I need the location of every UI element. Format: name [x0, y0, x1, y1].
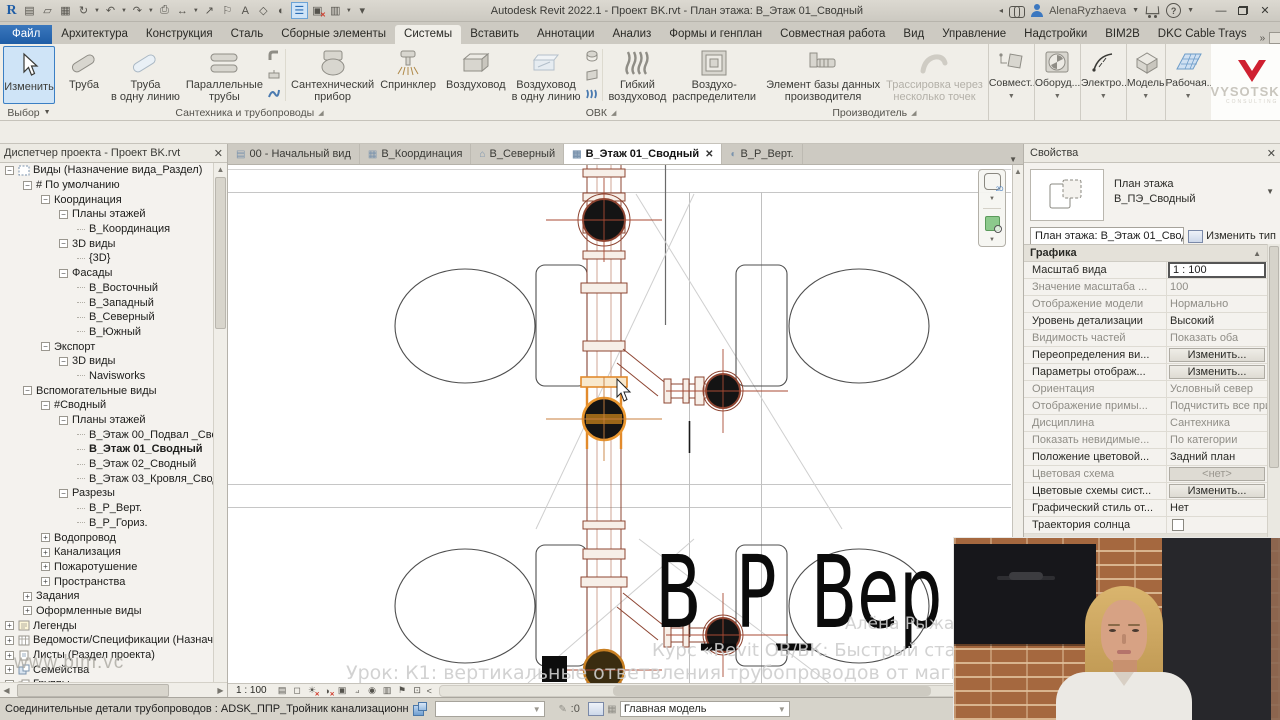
property-label: Дисциплина [1024, 415, 1167, 431]
property-label: Ориентация [1024, 381, 1167, 397]
vysotskiy-brand: VYSOTSKIY [1211, 84, 1280, 99]
sun-path-icon[interactable]: ☀✕ [306, 685, 319, 697]
vysotskiy-sub: CONSULTING [1226, 99, 1278, 105]
tree-item-Navisworks[interactable]: Navisworks [0, 369, 213, 384]
project-browser-close-icon[interactable]: ✕ [214, 147, 223, 160]
property-row-Уровень детализации: Уровень детализацииВысокий [1024, 313, 1267, 330]
presenter-face [1101, 600, 1147, 664]
tree-item-В_Этаж 01_Сводный[interactable]: В_Этаж 01_Сводный [0, 442, 213, 457]
workset-dropdown[interactable]: Главная модель ▼ [620, 701, 790, 717]
store-cart-icon[interactable] [1145, 5, 1160, 17]
Рабочая...-caret-icon[interactable]: ▼ [1185, 89, 1192, 103]
button-Элемент базы данных производителя[interactable]: Элемент базы данныхпроизводителя [763, 45, 883, 105]
property-button[interactable]: Изменить... [1169, 365, 1265, 379]
minimize-button[interactable]: — [1210, 2, 1232, 20]
collaborate-icon [997, 47, 1025, 77]
plan-view-icon: ▦ [572, 149, 581, 160]
type-selector-caret-icon[interactable]: ▼ [1266, 187, 1274, 196]
tab-Надстройки[interactable]: Надстройки [1015, 25, 1096, 44]
Модель-caret-icon[interactable]: ▼ [1142, 89, 1149, 103]
collapse-icon[interactable]: − [59, 239, 68, 248]
tab-Формы и генплан[interactable]: Формы и генплан [660, 25, 771, 44]
type-category: План этажа [1114, 177, 1195, 192]
view-tab-В_Координация[interactable]: ▦В_Координация [360, 144, 472, 164]
tree-item-3D виды[interactable]: −3D виды [0, 354, 213, 369]
tree-item-Оформленные виды[interactable]: +Оформленные виды [0, 604, 213, 619]
property-row-Ориентация: ОриентацияУсловный север [1024, 381, 1267, 398]
tab-Сталь[interactable]: Сталь [222, 25, 273, 44]
collapse-icon[interactable]: − [5, 166, 14, 175]
expand-icon[interactable]: + [23, 606, 32, 615]
property-value[interactable]: Показать оба [1167, 330, 1267, 346]
property-label: Траектория солнца [1024, 517, 1167, 533]
elevation-view-icon: ⌂ [479, 149, 485, 160]
tv-screen [954, 544, 1096, 644]
collapse-icon[interactable]: − [59, 210, 68, 219]
type-preview: План этажа В_ПЭ_Сводный ▼ [1024, 163, 1280, 225]
open-file-icon[interactable]: ▱ [39, 2, 56, 19]
ribbon-tab-extras: »▼ [1260, 32, 1280, 44]
bim-vc-watermark: www.bim.vc [14, 652, 124, 674]
tab-Анализ[interactable]: Анализ [603, 25, 660, 44]
property-value[interactable]: Сантехника [1167, 415, 1267, 431]
property-value[interactable]: Нет [1167, 500, 1267, 516]
property-row-Цветовая схема: Цветовая схема<нет> [1024, 466, 1267, 483]
tree-item-Легенды[interactable]: +Легенды [0, 618, 213, 633]
multipoint-routing-icon [917, 47, 951, 79]
button-Сантехнический прибор[interactable]: Сантехническийприбор [288, 45, 377, 105]
plumbing-fixture-icon [318, 47, 348, 79]
button-Параллельные трубы[interactable]: Параллельныетрубы [183, 45, 266, 105]
reveal-hidden-icon[interactable]: ◉ [366, 685, 379, 697]
signed-in-user[interactable]: AlenaRyzhaeva [1049, 5, 1126, 17]
project-browser-vscrollbar[interactable]: ▲ [213, 163, 227, 682]
help-menu-caret-icon[interactable]: ▼ [1187, 7, 1194, 14]
property-button[interactable]: Изменить... [1169, 484, 1265, 498]
view-control-bar: 1 : 100 ▤◻☀✕◑✕▣⟓◉▥⚑⊡ < [228, 683, 1023, 697]
pipe-icon [69, 47, 99, 79]
type-preview-image [1030, 169, 1104, 221]
equipment-icon [1043, 47, 1071, 77]
print-icon[interactable]: ⎙ [156, 2, 173, 19]
property-label: Цветовая схема [1024, 466, 1167, 482]
zoom-caret-icon[interactable]: ▼ [989, 237, 995, 243]
revit-window: R▤▱▦↻▼↶▼↷▼⎙↔▼↗⚐A◇◐☰▣✕▥▼▾ Autodesk Revit … [0, 0, 1280, 720]
project-browser-hscrollbar[interactable]: ◀▶ [0, 682, 227, 697]
tree-item-Ведомости/Спецификации (Назначен[interactable]: +Ведомости/Спецификации (Назначен [0, 633, 213, 648]
temporary-hide-icon[interactable]: ▥ [381, 685, 394, 697]
section-icon[interactable]: ◐ [273, 2, 290, 19]
collapse-viewbar-icon[interactable]: < [427, 686, 432, 696]
tree-item-Вспомогательные виды[interactable]: −Вспомогательные виды [0, 383, 213, 398]
collapse-icon[interactable]: − [59, 416, 68, 425]
tree-item-В_Этаж 02_Сводный[interactable]: В_Этаж 02_Сводный [0, 457, 213, 472]
button-Воздухо- распределители[interactable]: Воздухо-распределители [669, 45, 759, 105]
tree-item-#Сводный[interactable]: −#Сводный [0, 398, 213, 413]
property-row-Отображение примы...: Отображение примы...Подчистить все прим.… [1024, 398, 1267, 415]
expand-icon[interactable]: + [41, 577, 50, 586]
ribbon-state-icon[interactable] [1269, 32, 1280, 44]
property-label: Показать невидимые... [1024, 432, 1167, 448]
ribbon-tab-bar: ФайлАрхитектураКонструкцияСтальСборные э… [0, 22, 1280, 44]
property-checkbox[interactable] [1172, 519, 1184, 531]
property-value[interactable]: По категории [1167, 432, 1267, 448]
user-interface-icon[interactable]: ☰ [291, 2, 308, 19]
expand-icon[interactable]: + [5, 651, 14, 660]
tree-item-Фасады[interactable]: −Фасады [0, 266, 213, 281]
mini-panel-Рабочая...[interactable]: Рабочая...▼ [1165, 44, 1211, 120]
property-row-Масштаб вида: Масштаб вида1 : 100 [1024, 262, 1267, 279]
tree-item-В_Этаж 03_Кровля_Сводны[interactable]: В_Этаж 03_Кровля_Сводны [0, 471, 213, 486]
collapse-icon[interactable]: − [41, 195, 50, 204]
tree-item-{3D}[interactable]: {3D} [0, 251, 213, 266]
type-selector-value: План этажа: В_Этаж 01_Сводный [1035, 230, 1184, 242]
tab-Системы[interactable]: Системы [395, 25, 461, 44]
property-row-Переопределения ви...: Переопределения ви...Изменить... [1024, 347, 1267, 364]
webcam-video [953, 537, 1280, 720]
watermark-lesson: Урок: К1: вертикальные ответвления трубо… [346, 662, 1033, 684]
expand-icon[interactable]: + [5, 636, 14, 645]
user-icon [1031, 4, 1043, 17]
tree-item-В_Северный[interactable]: В_Северный [0, 310, 213, 325]
collapse-icon[interactable]: − [41, 342, 50, 351]
edit-type-label: Изменить тип [1206, 230, 1276, 242]
tab-Конструкция[interactable]: Конструкция [137, 25, 222, 44]
tree-item-В_Восточный[interactable]: В_Восточный [0, 281, 213, 296]
tab-Сборные элементы[interactable]: Сборные элементы [272, 25, 395, 44]
wheel-caret-icon[interactable]: ▼ [989, 196, 995, 202]
expand-icon[interactable]: + [23, 592, 32, 601]
property-row-Графический стиль от...: Графический стиль от...Нет [1024, 500, 1267, 517]
tree-item-В_Западный[interactable]: В_Западный [0, 295, 213, 310]
property-group-Графика[interactable]: Графика▲ [1024, 245, 1267, 262]
user-menu-caret-icon[interactable]: ▼ [1132, 7, 1139, 14]
view-tab-В_Р_Верт.[interactable]: ◐В_Р_Верт. [722, 144, 802, 164]
property-label: Отображение модели [1024, 296, 1167, 312]
panel-ОВК: ВоздуховодВоздуховодв одну линиюГибкийво… [441, 44, 761, 120]
collapse-icon[interactable]: − [59, 489, 68, 498]
visual-style-icon[interactable]: ◻ [291, 685, 304, 697]
project-browser-tree: −Виды (Назначение вида_Раздел)−# По умол… [0, 163, 213, 682]
property-row-Отображение модели: Отображение моделиНормально [1024, 296, 1267, 313]
expand-icon[interactable]: + [41, 562, 50, 571]
air-terminal-icon [699, 47, 729, 79]
close-hidden-windows-icon[interactable]: ▣✕ [309, 2, 326, 19]
tab-Управление[interactable]: Управление [933, 25, 1015, 44]
tab-Вставить[interactable]: Вставить [461, 25, 528, 44]
window-title: Autodesk Revit 2022.1 - Проект BK.rvt - … [491, 5, 863, 17]
tree-item-В_Р_Верт.[interactable]: В_Р_Верт. [0, 501, 213, 516]
status-hint: Соединительные детали трубопроводов : AD… [5, 703, 409, 715]
schedule-icon [18, 635, 30, 646]
view-tab-В_Северный[interactable]: ⌂В_Северный [471, 144, 564, 164]
shadows-icon[interactable]: ◑✕ [321, 685, 334, 697]
properties-close-icon[interactable]: ✕ [1267, 147, 1276, 160]
button-Воздуховод[interactable]: Воздуховод [443, 45, 509, 105]
property-edit-field[interactable]: 1 : 100 [1168, 262, 1266, 278]
button-Труба[interactable]: Труба [60, 45, 108, 105]
panel-name-select[interactable]: Выбор▼ [0, 105, 58, 120]
property-label: Параметры отображ... [1024, 364, 1167, 380]
type-selector-dropdown[interactable]: План этажа: В_Этаж 01_Сводный ▼ [1030, 227, 1184, 245]
property-label: Отображение примы... [1024, 398, 1167, 414]
tree-item-3D виды[interactable]: −3D виды [0, 236, 213, 251]
tree-item-В_Этаж 00_Подвал _Сводн[interactable]: В_Этаж 00_Подвал _Сводн [0, 427, 213, 442]
selected-pipe-segment[interactable] [546, 377, 662, 461]
expand-icon[interactable]: + [5, 621, 14, 630]
expand-icon[interactable]: + [41, 548, 50, 557]
tree-item-Координация[interactable]: −Координация [0, 192, 213, 207]
views-icon [18, 165, 30, 176]
property-label: Значение масштаба ... [1024, 279, 1167, 295]
tree-item-Экспорт[interactable]: −Экспорт [0, 339, 213, 354]
selection-counter: :0 [571, 703, 580, 715]
close-button[interactable]: ✕ [1254, 2, 1276, 20]
collapse-group-icon[interactable]: ▲ [1253, 249, 1261, 258]
collapse-icon[interactable]: − [59, 269, 68, 278]
tab-Совместная работа[interactable]: Совместная работа [771, 25, 894, 44]
crop-view-icon[interactable]: ▣ [336, 685, 349, 697]
property-value[interactable]: Подчистить все прим... [1167, 398, 1267, 414]
tree-item-В_Координация[interactable]: В_Координация [0, 222, 213, 237]
property-row-Параметры отображ...: Параметры отображ...Изменить... [1024, 364, 1267, 381]
project-browser: Диспетчер проекта - Проект BK.rvt ✕ −Вид… [0, 144, 228, 697]
detail-level-icon[interactable]: ▤ [276, 685, 289, 697]
panel-name-Сантехника и трубопроводы[interactable]: Сантехника и трубопроводы◢ [58, 105, 441, 120]
start-page-icon: ▤ [236, 149, 245, 160]
tab-BIM2B[interactable]: BIM2B [1096, 25, 1149, 44]
property-row-Дисциплина: ДисциплинаСантехника [1024, 415, 1267, 432]
button-Гибкий воздуховод[interactable]: Гибкийвоздуховод [605, 45, 669, 105]
view-tab-list-icon[interactable]: ▼ [1003, 155, 1023, 164]
view-tab-bar: ▤00 - Начальный вид▦В_Координация⌂В_Севе… [228, 144, 1023, 165]
property-value[interactable]: Условный север [1167, 381, 1267, 397]
measure-icon[interactable]: ↔ [174, 2, 191, 19]
button-Спринклер[interactable]: Спринклер [377, 45, 439, 105]
canvas-hscrollbar[interactable] [439, 685, 1019, 697]
switch-windows-icon-caret[interactable]: ▼ [346, 8, 352, 14]
property-label: Графический стиль от... [1024, 500, 1167, 516]
property-value[interactable]: 100 [1167, 279, 1267, 295]
switch-windows-icon[interactable]: ▥ [327, 2, 344, 19]
parallel-pipes-icon [209, 47, 239, 79]
navigation-bar[interactable]: ▼ ▼ [978, 169, 1006, 247]
duct-fitting-icon[interactable] [584, 50, 599, 63]
button-Трассировка через несколько точек: Трассировка черезнесколько точек [883, 45, 986, 105]
pipe-fitting-icon[interactable] [267, 50, 282, 63]
duct-placeholder-icon [530, 47, 562, 79]
property-label: Положение цветовой... [1024, 449, 1167, 465]
collapse-icon[interactable]: − [41, 401, 50, 410]
help-icon[interactable]: ? [1166, 3, 1181, 18]
section-view-icon: ◐ [730, 149, 736, 160]
aligned-dimension-icon[interactable]: ↗ [201, 2, 218, 19]
tree-item-Разрезы[interactable]: −Разрезы [0, 486, 213, 501]
tab-Аннотации[interactable]: Аннотации [528, 25, 603, 44]
tab-DKC Cable Trays[interactable]: DKC Cable Trays [1149, 25, 1256, 44]
design-option-dropdown[interactable]: ▼ [435, 701, 545, 717]
drawing-area[interactable]: В_Р_Вер ▼ ▼ ▲ [228, 165, 1023, 683]
panel-name-Производитель[interactable]: Производитель◢ [761, 105, 988, 120]
mini-panel-Электро...[interactable]: Электро...▼ [1080, 44, 1126, 120]
collapse-icon[interactable]: − [59, 357, 68, 366]
property-row-Положение цветовой...: Положение цветовой...Задний план [1024, 449, 1267, 466]
properties-header: Свойства ✕ [1024, 144, 1280, 163]
search-icon[interactable] [1009, 5, 1025, 17]
ribbon: ИзменитьВыбор▼ТрубаТрубав одну линиюПара… [0, 44, 1280, 121]
undo-icon-caret[interactable]: ▼ [121, 8, 127, 14]
view-scale[interactable]: 1 : 100 [236, 685, 267, 696]
model-icon [1132, 47, 1160, 77]
properties-title: Свойства [1030, 147, 1078, 159]
modify-button[interactable]: Изменить [3, 46, 55, 104]
duct-accessory-icon[interactable] [584, 68, 599, 81]
mini-panel-Модель[interactable]: Модель▼ [1126, 44, 1165, 120]
collapse-icon[interactable]: − [23, 386, 32, 395]
restore-button[interactable] [1232, 2, 1254, 20]
project-browser-header: Диспетчер проекта - Проект BK.rvt ✕ [0, 144, 227, 163]
presenter-shirt [1056, 672, 1192, 720]
property-row-Значение масштаба ...: Значение масштаба ...100 [1024, 279, 1267, 296]
property-label: Масштаб вида [1024, 262, 1167, 278]
tree-item-Задания[interactable]: +Задания [0, 589, 213, 604]
vysotskiy-mark-icon [1238, 60, 1266, 82]
new-file-icon[interactable]: ▤ [21, 2, 38, 19]
tree-item-Планы этажей[interactable]: −Планы этажей [0, 207, 213, 222]
options-bar [0, 121, 1280, 144]
worksets-icon[interactable]: ▦ [604, 702, 620, 716]
tag-icon[interactable]: ⚐ [219, 2, 236, 19]
panel-select: ИзменитьВыбор▼ [0, 44, 58, 120]
pipe-branch-top[interactable] [617, 349, 788, 433]
flex-duct-icon [622, 47, 652, 79]
steering-wheel-icon[interactable] [984, 173, 1001, 190]
view-tab-00 - Начальный вид[interactable]: ▤00 - Начальный вид [228, 144, 360, 164]
active-workset: Главная модель [624, 703, 707, 715]
editable-only-icon[interactable]: ✎ [555, 702, 571, 716]
tree-item-Пространства[interactable]: +Пространства [0, 574, 213, 589]
sync-icon-caret[interactable]: ▼ [94, 8, 100, 14]
modify-cursor-icon [18, 49, 40, 81]
property-label: Уровень детализации [1024, 313, 1167, 329]
workplane-icon [1173, 47, 1203, 77]
mini-panel-Совмест...[interactable]: Совмест...▼ [988, 44, 1034, 120]
property-row-Траектория солнца: Траектория солнца [1024, 517, 1267, 534]
flex-pipe-icon[interactable] [267, 87, 282, 100]
duct-icon [460, 47, 492, 79]
property-label: Цветовые схемы сист... [1024, 483, 1167, 499]
sync-icon[interactable]: ↻ [75, 2, 92, 19]
mfg-part-icon [806, 47, 840, 79]
save-icon[interactable]: ▦ [57, 2, 74, 19]
tree-item-Водопровод[interactable]: +Водопровод [0, 530, 213, 545]
view-tab-В_Этаж 01_Сводный[interactable]: ▦В_Этаж 01_Сводный✕ [564, 144, 722, 164]
Электро...-caret-icon[interactable]: ▼ [1100, 89, 1107, 103]
collapse-search-icon[interactable]: ◂ [999, 6, 1003, 15]
zoom-icon[interactable] [985, 216, 1000, 231]
tree-item-Виды (Назначение вида_Раздел)[interactable]: −Виды (Назначение вида_Раздел) [0, 163, 213, 178]
tree-item-# По умолчанию[interactable]: −# По умолчанию [0, 178, 213, 193]
expand-icon[interactable]: + [5, 665, 14, 674]
tree-item-Планы этажей[interactable]: −Планы этажей [0, 413, 213, 428]
flex-duct-small-icon[interactable] [584, 87, 599, 100]
edit-type-button[interactable]: Изменить тип [1188, 230, 1276, 243]
property-row-Показать невидимые...: Показать невидимые...По категории [1024, 432, 1267, 449]
view-tab-close-icon[interactable]: ✕ [705, 149, 713, 160]
property-label: Видимость частей [1024, 330, 1167, 346]
Совмест...-caret-icon[interactable]: ▼ [1008, 89, 1015, 103]
redo-icon-caret[interactable]: ▼ [148, 8, 154, 14]
pipe-placeholder-icon [130, 47, 160, 79]
property-label: Переопределения ви... [1024, 347, 1167, 363]
collapse-icon[interactable]: − [23, 181, 32, 190]
project-browser-title: Диспетчер проекта - Проект BK.rvt [4, 147, 180, 159]
Оборуд...-caret-icon[interactable]: ▼ [1054, 89, 1061, 103]
riser-symbol-top[interactable] [546, 178, 662, 262]
property-value[interactable]: Задний план [1167, 449, 1267, 465]
plan-view-icon: ▦ [368, 149, 377, 160]
vysotskiy-logo: VYSOTSKIYCONSULTING [1211, 44, 1280, 120]
panel-Сантехника и трубопроводы: ТрубаТрубав одну линиюПараллельныетрубыС… [58, 44, 441, 120]
worksharing-display-icon[interactable] [588, 702, 604, 716]
property-row-Цветовые схемы сист...: Цветовые схемы сист...Изменить... [1024, 483, 1267, 500]
tab-Файл[interactable]: Файл [0, 25, 52, 44]
property-value[interactable]: Высокий [1167, 313, 1267, 329]
undo-icon[interactable]: ↶ [102, 2, 119, 19]
edit-type-icon [1188, 230, 1203, 243]
constraints-icon[interactable]: ⊡ [411, 685, 424, 697]
tree-item-В_Южный[interactable]: В_Южный [0, 325, 213, 340]
sprinkler-icon [393, 47, 423, 79]
panel-name-ОВК[interactable]: ОВК◢ [441, 105, 761, 120]
button-Труба в одну линию[interactable]: Трубав одну линию [108, 45, 183, 105]
type-name: В_ПЭ_Сводный [1114, 192, 1195, 207]
panel-Производитель: Элемент базы данныхпроизводителяТрассиро… [761, 44, 988, 120]
pipe-accessory-icon[interactable] [267, 68, 282, 81]
property-button[interactable]: Изменить... [1169, 348, 1265, 362]
wall-edge [1271, 538, 1280, 720]
family-badge-icon [413, 702, 427, 716]
electrical-icon [1089, 47, 1117, 77]
button-Воздуховод в одну линию[interactable]: Воздуховодв одну линию [509, 45, 584, 105]
property-value[interactable]: Нормально [1167, 296, 1267, 312]
titlebar-right: ◂ AlenaRyzhaeva ▼ ? ▼ — ✕ [999, 2, 1280, 20]
tree-item-В_Р_Гориз.[interactable]: В_Р_Гориз. [0, 516, 213, 531]
quick-access-toolbar: R▤▱▦↻▼↶▼↷▼⎙↔▼↗⚐A◇◐☰▣✕▥▼▾ [0, 2, 371, 19]
worksharing-display-icon[interactable]: ⚑ [396, 685, 409, 697]
tab-Вид[interactable]: Вид [894, 25, 933, 44]
redo-icon[interactable]: ↷ [129, 2, 146, 19]
mini-panel-Оборуд...[interactable]: Оборуд...▼ [1034, 44, 1080, 120]
tree-item-Пожаротушение[interactable]: +Пожаротушение [0, 560, 213, 575]
guide-arrows-icon[interactable]: » [1260, 33, 1266, 44]
measure-icon-caret[interactable]: ▼ [193, 8, 199, 14]
drone-silhouette [1009, 572, 1043, 580]
title-bar: R▤▱▦↻▼↶▼↷▼⎙↔▼↗⚐A◇◐☰▣✕▥▼▾ Autodesk Revit … [0, 0, 1280, 22]
watermark-course: Курс «Revit ОВ/ВК: Быстрый старт» [652, 640, 989, 661]
text-icon[interactable]: A [237, 2, 254, 19]
property-button[interactable]: <нет> [1169, 467, 1265, 481]
customize-qat-icon[interactable]: ▾ [354, 2, 371, 19]
revit-logo[interactable]: R [3, 2, 20, 19]
property-row-Видимость частей: Видимость частейПоказать оба [1024, 330, 1267, 347]
default-3d-view-icon[interactable]: ◇ [255, 2, 272, 19]
tree-item-Канализация[interactable]: +Канализация [0, 545, 213, 560]
legend-icon [18, 620, 30, 631]
show-crop-icon[interactable]: ⟓ [351, 685, 364, 697]
tab-Архитектура[interactable]: Архитектура [52, 25, 137, 44]
expand-icon[interactable]: + [41, 533, 50, 542]
